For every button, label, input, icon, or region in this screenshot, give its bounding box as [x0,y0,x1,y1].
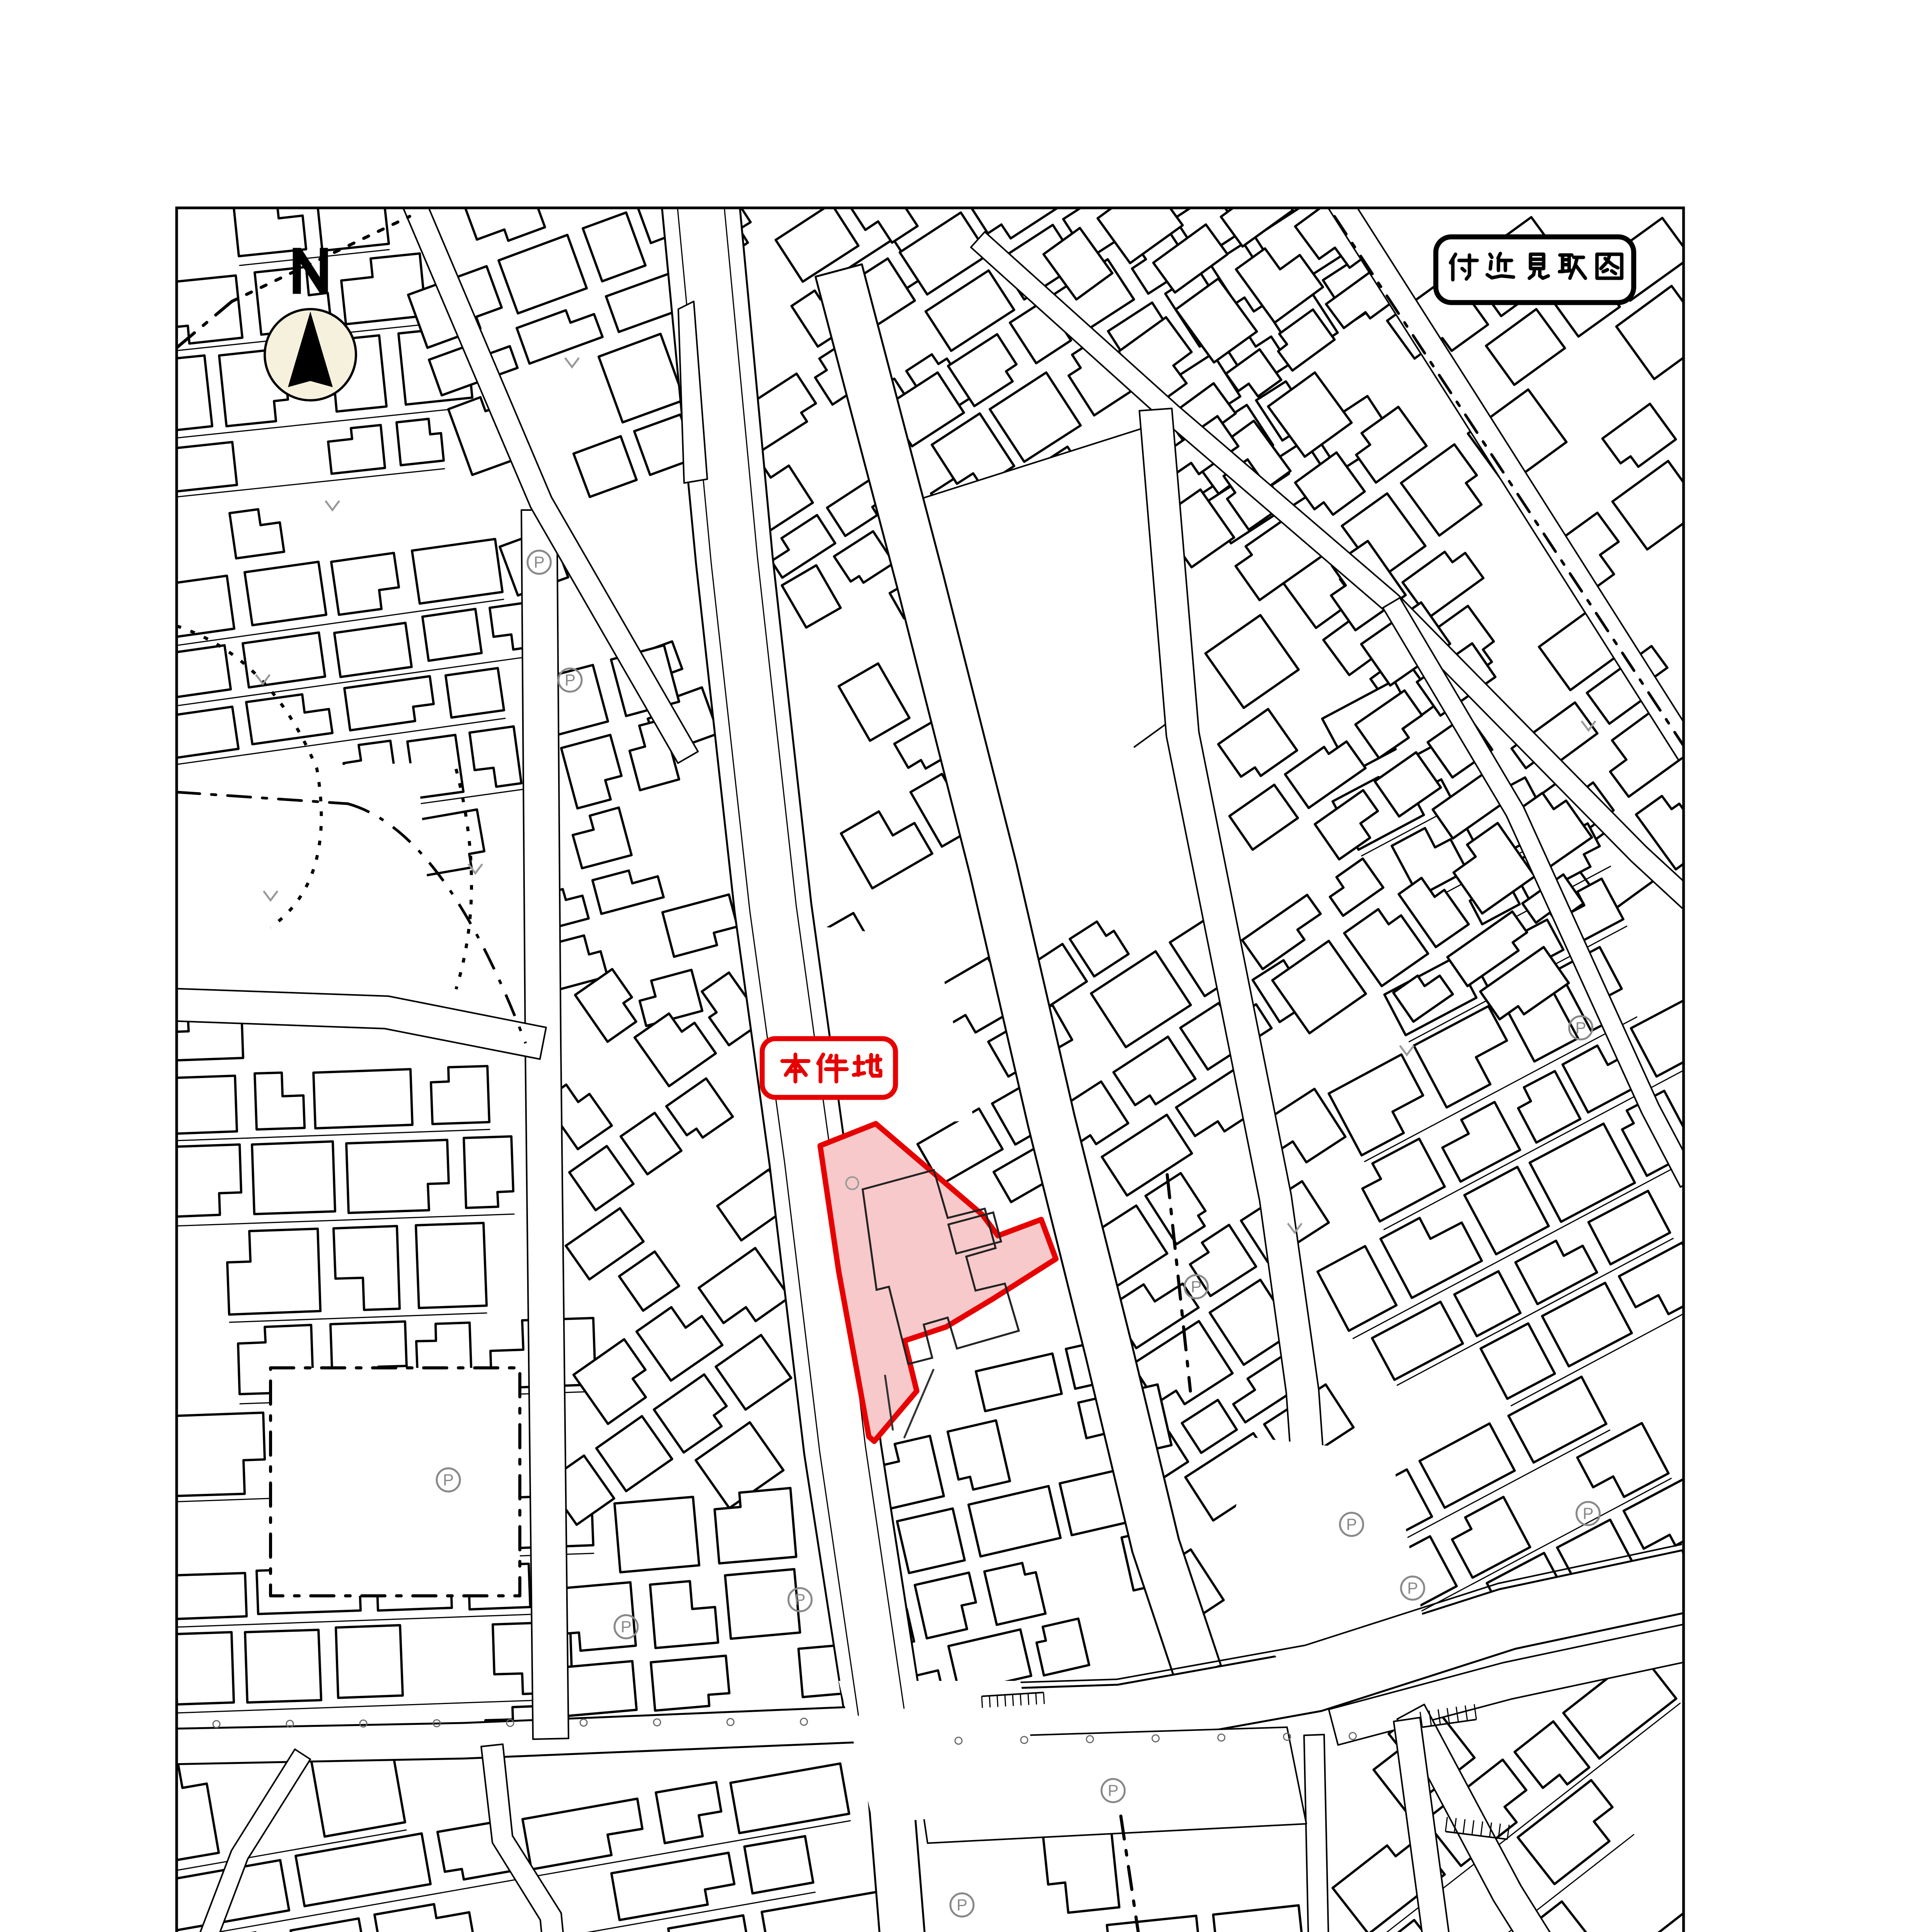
svg-text:P: P [621,1617,632,1636]
svg-text:P: P [1108,1781,1119,1799]
svg-text:P: P [443,1471,454,1489]
svg-text:P: P [957,1896,967,1914]
svg-text:P: P [1575,1019,1586,1037]
svg-text:P: P [534,553,545,571]
svg-text:P: P [1583,1504,1594,1522]
svg-text:P: P [1191,1277,1202,1296]
svg-text:P: P [565,671,575,689]
svg-text:P: P [795,1590,805,1609]
svg-text:P: P [1346,1515,1357,1533]
svg-text:P: P [1407,1579,1418,1597]
